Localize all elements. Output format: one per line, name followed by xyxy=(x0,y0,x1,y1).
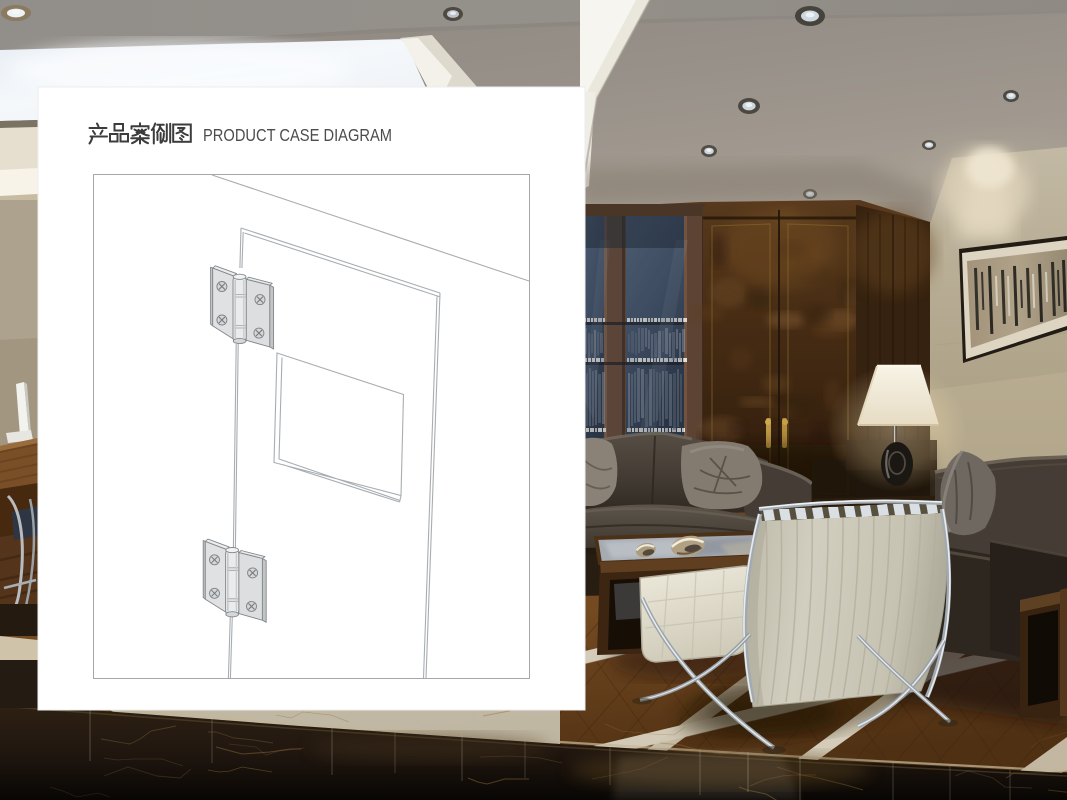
svg-text:PRODUCT CASE DIAGRAM: PRODUCT CASE DIAGRAM xyxy=(203,125,392,145)
